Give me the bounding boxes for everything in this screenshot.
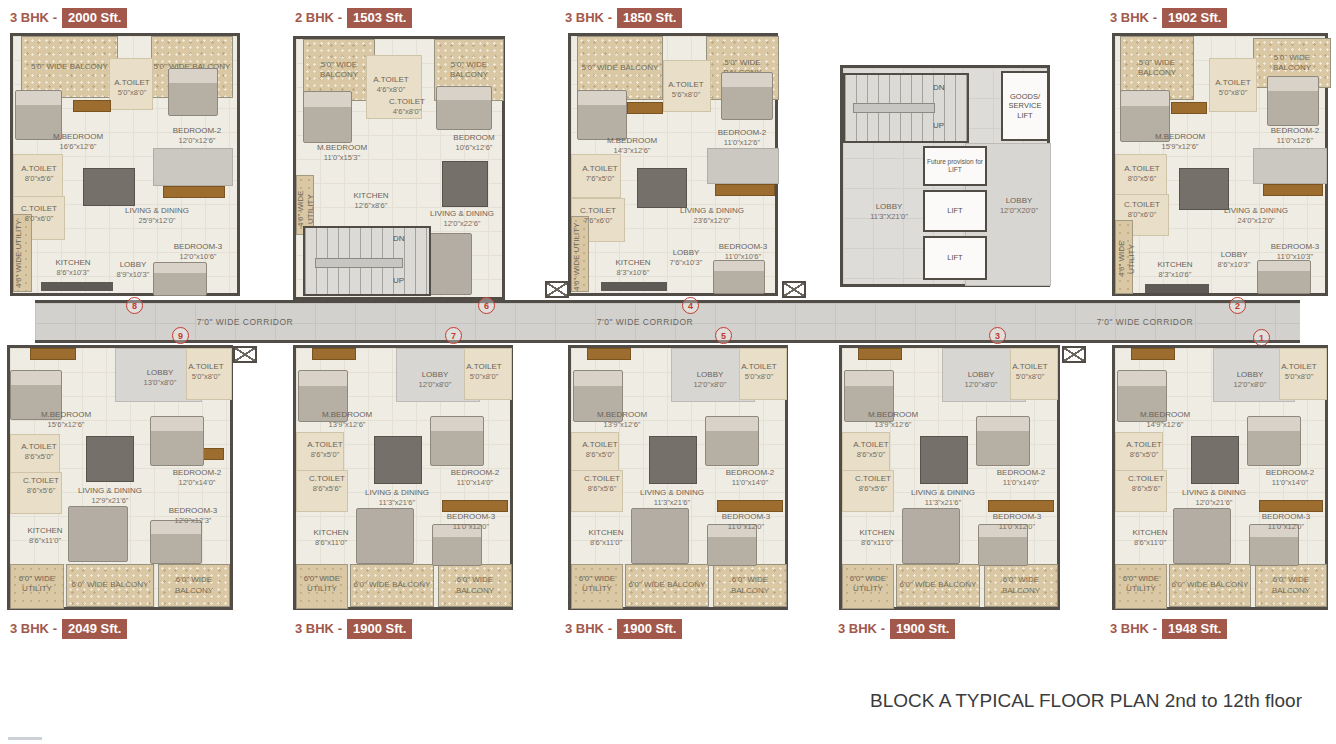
- room-label-lobby: LOBBY12'0"X20'0": [989, 196, 1049, 215]
- duct-shaft: [782, 281, 806, 298]
- room-label-living: LIVING & DINING24'0"x12'0": [1209, 206, 1303, 225]
- unit-number-5: 5: [715, 327, 732, 344]
- unit-number-7: 7: [445, 327, 462, 344]
- unit-2-3bhk-1902: 5'0" WIDE BALCONY 5'0" WIDE BALCONY M.BE…: [1112, 33, 1328, 296]
- unit-badge-1900-b: 3 BHK -1900 Sft.: [565, 621, 682, 636]
- room-label-ctoilet: C.TOILET8'6"x5'6": [846, 474, 900, 493]
- badge-area: 1902 Sft.: [1162, 8, 1227, 28]
- goods-service-lift: GOODS/ SERVICE LIFT: [1001, 71, 1049, 141]
- bed-icon: [577, 90, 627, 140]
- bed-icon: [713, 260, 765, 294]
- badge-area: 1900 Sft.: [890, 619, 955, 639]
- wardrobe-accent: [1259, 500, 1323, 512]
- room-label-mbedroom: M.BEDROOM13'9"x12'6": [579, 410, 665, 429]
- room-label-atoilet: A.TOILET5'0"x8'0": [458, 362, 510, 381]
- unit-badge-2049: 3 BHK -2049 Sft.: [10, 621, 127, 636]
- room-label-atoilet: A.TOILET8'6"x5'0": [298, 440, 352, 459]
- balcony-label: 6'0" WIDE BALCONY: [1172, 580, 1249, 590]
- unit-5-3bhk-1900: 6'0" WIDE BALCONY 6'0" WIDE BALCONY LOBB…: [568, 345, 788, 610]
- badge-bhk: 3 BHK: [1110, 621, 1149, 636]
- room-label-kitchen: KITCHEN8'6"x11'0": [1119, 528, 1181, 547]
- room-label-living: LIVING & DINING12'0"x22'6": [418, 209, 506, 228]
- room-label-living: LIVING & DINING25'9"x12'0": [109, 206, 205, 225]
- unit-1-3bhk-1948: 6'0" WIDE BALCONY 6'0" WIDE BALCONY LOBB…: [1112, 345, 1328, 610]
- wardrobe-accent: [73, 100, 111, 112]
- dining-table-icon: [920, 436, 968, 484]
- unit-9-3bhk-2049: 6'0" WIDE BALCONY 6'0" WIDE BALCONY LOBB…: [7, 345, 233, 610]
- rug-icon: [153, 148, 233, 186]
- sofa-icon: [428, 233, 472, 295]
- kitchen-counter: [41, 282, 113, 291]
- sofa-icon: [631, 508, 689, 564]
- stair-up-label: UP: [933, 121, 944, 130]
- room-label-ctoilet: C.TOILET8'6"x5'6": [300, 474, 354, 493]
- room-label-bedroom3: BEDROOM-311'0"x12'0": [707, 512, 785, 531]
- plan-title: BLOCK A TYPICAL FLOOR PLAN 2nd to 12th f…: [846, 690, 1326, 712]
- room-label-mbedroom: M.BEDROOM13'9"x12'6": [304, 410, 390, 429]
- room-label-atoilet: A.TOILET8'6"x5'0": [844, 440, 898, 459]
- badge-bhk: 3 BHK: [295, 621, 334, 636]
- balcony-label: 6'0" WIDE BALCONY: [354, 580, 431, 590]
- room-label-kitchen: KITCHEN8'6"x11'0": [14, 526, 76, 545]
- wardrobe-accent: [1131, 348, 1175, 360]
- room-label-utility: 6'0" WIDE UTILITY: [1115, 574, 1167, 594]
- room-label-living: LIVING & DINING12'9"x21'6": [62, 486, 158, 505]
- room-label-atoilet: A.TOILET5'6"x8'0": [659, 80, 713, 99]
- badge-sep: -: [1153, 621, 1157, 636]
- dining-table-icon: [83, 168, 135, 206]
- badge-area: 1503 Sft.: [347, 8, 412, 28]
- corridor-label: 7'0" WIDE CORRIDOR: [1055, 317, 1235, 327]
- room-label-bedroom3: BEDROOM-311'0"x12'0": [978, 512, 1056, 531]
- room-label-mbedroom: M.BEDROOM14'3"x12'6": [589, 136, 675, 155]
- wardrobe-accent: [988, 500, 1054, 512]
- room-label-atoilet: A.TOILET8'6"x5'0": [12, 442, 66, 461]
- balcony-label: 5'0" WIDE BALCONY: [435, 60, 503, 81]
- room-label-bedroom2: BEDROOM-212'0"x14'0": [158, 468, 236, 487]
- badge-sep: -: [53, 10, 57, 25]
- room-label-bedroom2: BEDROOM-211'0"x14'0": [982, 468, 1060, 487]
- room-label-atoilet: A.TOILET5'0"x8'0": [1004, 362, 1056, 381]
- room-label-ctoilet: C.TOILET8'6"x5'6": [14, 476, 68, 495]
- staircase: DN UP: [843, 73, 969, 143]
- balcony-label: 6'0" WIDE BALCONY: [714, 575, 786, 596]
- badge-area: 1850 Sft.: [617, 8, 682, 28]
- room-label-lobby: LOBBY8'9"x10'3": [105, 260, 161, 279]
- badge-sep: -: [881, 621, 885, 636]
- wardrobe-accent: [717, 500, 783, 512]
- bed-icon: [153, 262, 207, 296]
- balcony-label: 5'0" WIDE BALCONY: [31, 62, 108, 72]
- room-label-atoilet: A.TOILET5'0"x8'0": [1207, 78, 1259, 97]
- balcony: 5'0" WIDE BALCONY: [21, 36, 118, 98]
- badge-bhk: 3 BHK: [838, 621, 877, 636]
- room-label-bedroom: BEDROOM10'6"x12'6": [434, 133, 514, 152]
- balcony-label: 5'0" WIDE BALCONY: [1254, 53, 1330, 74]
- room-label-utility: 6'0" WIDE UTILITY: [842, 574, 894, 594]
- badge-bhk: 2 BHK: [295, 10, 334, 25]
- bed-icon: [721, 72, 773, 120]
- floor-plan-canvas: 3 BHK -2000 Sft. 2 BHK -1503 Sft. 3 BHK …: [0, 0, 1336, 744]
- balcony-label: 6'0" WIDE BALCONY: [159, 575, 229, 596]
- central-core: DN UP GOODS/ SERVICE LIFT Future provisi…: [840, 65, 1050, 287]
- rug-icon: [707, 148, 779, 184]
- room-label-kitchen: KITCHEN8'6"x11'0": [846, 528, 908, 547]
- wardrobe-accent: [442, 500, 508, 512]
- room-label-bedroom2: BEDROOM-211'0"x14'0": [436, 468, 514, 487]
- room-label-bedroom2: BEDROOM-211'0"x14'0": [1251, 468, 1329, 487]
- room-label-bedroom3: BEDROOM-311'0"x10'3": [1257, 242, 1333, 261]
- badge-area: 2049 Sft.: [62, 619, 127, 639]
- corridor: 7'0" WIDE CORRIDOR 7'0" WIDE CORRIDOR 7'…: [35, 300, 1300, 343]
- dining-table-icon: [1179, 168, 1229, 210]
- balcony: 6'0" WIDE BALCONY: [625, 564, 709, 607]
- stair-up-label: UP: [393, 276, 404, 285]
- room-label-living: LIVING & DINING11'3"x21'6": [625, 488, 719, 507]
- lift: LIFT: [923, 236, 987, 280]
- room-label-utility: 4'6" WIDE UTILITY: [1117, 226, 1137, 292]
- stair-landing: [315, 258, 403, 268]
- unit-number-9: 9: [172, 327, 189, 344]
- badge-bhk: 3 BHK: [565, 621, 604, 636]
- unit-number-2: 2: [1229, 297, 1246, 314]
- bed-icon: [1257, 260, 1311, 294]
- room-label-mbedroom: M.BEDROOM15'6"x12'6": [22, 410, 110, 429]
- balcony: 6'0" WIDE BALCONY: [158, 564, 230, 607]
- room-label-kitchen: KITCHEN8'6"x10'3": [41, 258, 105, 277]
- balcony-label: 6'0" WIDE BALCONY: [72, 580, 149, 590]
- room-label-mbedroom: M.BEDROOM13'9"x12'6": [850, 410, 936, 429]
- balcony: 6'0" WIDE BALCONY: [984, 564, 1058, 607]
- room-label-mbedroom: M.BEDROOM16'6"x12'6": [31, 132, 125, 151]
- dining-table-icon: [1191, 436, 1239, 484]
- room-label-kitchen: KITCHEN8'6"x11'0": [300, 528, 362, 547]
- balcony-label: 6'0" WIDE BALCONY: [1256, 575, 1326, 596]
- badge-sep: -: [1153, 10, 1157, 25]
- bed-icon: [150, 520, 202, 564]
- unit-4-3bhk-1850: 5'0" WIDE BALCONY 5'0" WIDE BALCONY M.BE…: [568, 33, 778, 296]
- room-label-bedroom2: BEDROOM-212'0"x12'6": [159, 126, 235, 145]
- sofa-icon: [1173, 508, 1231, 564]
- sofa-icon: [68, 506, 128, 562]
- room-label-utility: 6'0" WIDE UTILITY: [10, 574, 64, 594]
- room-label-mbedroom: M.BEDROOM15'9"x12'6": [1135, 132, 1225, 151]
- room-label-kitchen: KITCHEN12'6"x8'6": [338, 191, 404, 210]
- balcony-label: 5'0" WIDE BALCONY: [582, 63, 659, 73]
- unit-7-3bhk-1900: 6'0" WIDE BALCONY 6'0" WIDE BALCONY LOBB…: [293, 345, 513, 610]
- badge-sep: -: [338, 621, 342, 636]
- balcony: 6'0" WIDE BALCONY: [713, 564, 787, 607]
- bed-icon: [303, 91, 352, 143]
- bed-icon: [1267, 76, 1319, 126]
- stair-landing: [853, 103, 935, 113]
- wardrobe-accent: [627, 102, 663, 114]
- room-label-bedroom3: BEDROOM-311'0"x12'0": [432, 512, 510, 531]
- dining-table-icon: [442, 161, 488, 207]
- unit-number-4: 4: [682, 297, 699, 314]
- room-label-bedroom2: BEDROOM-211'0"x12'6": [705, 128, 779, 147]
- badge-sep: -: [53, 621, 57, 636]
- room-label-bedroom2: BEDROOM-211'0"x12'6": [1259, 126, 1331, 145]
- room-label-atoilet: A.TOILET4'6"x8'0": [364, 75, 418, 94]
- badge-sep: -: [338, 10, 342, 25]
- sofa-icon: [902, 508, 960, 564]
- wardrobe-accent: [1263, 184, 1323, 196]
- badge-area: 1900 Sft.: [347, 619, 412, 639]
- room-label-atoilet: A.TOILET8'6"x5'0": [1117, 440, 1171, 459]
- bed-icon: [705, 416, 759, 466]
- badge-area: 1948 Sft.: [1162, 619, 1227, 639]
- balcony: 6'0" WIDE BALCONY: [350, 564, 434, 607]
- room-label-atoilet: A.TOILET5'0"x8'0": [107, 78, 157, 97]
- wardrobe-accent: [30, 348, 76, 360]
- unit-6-2bhk-1503: 5'0" WIDE BALCONY 5'0" WIDE BALCONY DN U…: [293, 36, 505, 300]
- room-label-living: LIVING & DINING12'0"x21'6": [1167, 488, 1261, 507]
- wardrobe-accent: [1171, 102, 1207, 114]
- staircase: DN UP: [303, 226, 431, 296]
- badge-bhk: 3 BHK: [565, 10, 604, 25]
- badge-area: 1900 Sft.: [617, 619, 682, 639]
- unit-badge-1900-c: 3 BHK -1900 Sft.: [838, 621, 955, 636]
- rug-icon: [1253, 148, 1327, 184]
- dining-table-icon: [86, 436, 134, 482]
- room-label-atoilet: A.TOILET8'6"x5'0": [573, 440, 627, 459]
- room-label-mbedroom: M.BEDROOM11'0"x15'3": [300, 143, 384, 162]
- bed-icon: [976, 416, 1030, 466]
- footer-mark: [8, 737, 42, 740]
- balcony-label: 6'0" WIDE BALCONY: [439, 575, 511, 596]
- room-label-mbedroom: M.BEDROOM14'9"x12'6": [1121, 410, 1209, 429]
- room-label-living: LIVING & DINING11'3"x21'6": [350, 488, 444, 507]
- badge-area: 2000 Sft.: [62, 8, 127, 28]
- room-label-bedroom3: BEDROOM-312'0"x12'3": [154, 506, 232, 525]
- room-label-ctoilet: C.TOILET8'0"x6'0": [1115, 200, 1169, 219]
- room-label-atoilet: A.TOILET5'0"x8'0": [180, 362, 232, 381]
- balcony-label: 6'0" WIDE BALCONY: [900, 580, 977, 590]
- unit-badge-1850: 3 BHK -1850 Sft.: [565, 10, 682, 25]
- room-label-atoilet: A.TOILET7'6"x5'0": [573, 164, 627, 183]
- kitchen-counter: [601, 282, 667, 291]
- room-label-bedroom3: BEDROOM-311'0"x12'0": [1247, 512, 1325, 531]
- badge-bhk: 3 BHK: [1110, 10, 1149, 25]
- balcony-label: 6'0" WIDE BALCONY: [629, 580, 706, 590]
- bed-icon: [436, 86, 492, 130]
- unit-number-3: 3: [989, 327, 1006, 344]
- bed-icon: [430, 416, 484, 466]
- wardrobe-accent: [312, 348, 356, 360]
- unit-badge-1503: 2 BHK -1503 Sft.: [295, 10, 412, 25]
- room-label-bedroom3: BEDROOM-311'0"x10'6": [705, 242, 781, 261]
- stair-dn-label: DN: [393, 234, 405, 243]
- corridor-label: 7'0" WIDE CORRIDOR: [555, 317, 735, 327]
- room-label-atoilet: A.TOILET8'0"x5'6": [13, 164, 65, 183]
- room-label-living: LIVING & DINING11'3"x21'6": [896, 488, 990, 507]
- unit-8-3bhk-2000: 5'0" WIDE BALCONY 5'0" WIDE BALCONY M.BE…: [10, 33, 240, 296]
- room-label-atoilet: A.TOILET8'0"x5'6": [1115, 164, 1169, 183]
- corridor-label: 7'0" WIDE CORRIDOR: [155, 317, 335, 327]
- room-label-kitchen: KITCHEN8'3"x10'6": [601, 258, 665, 277]
- dining-table-icon: [649, 436, 697, 484]
- room-label-utility: 4'6" WIDE UTILITY: [14, 218, 24, 290]
- badge-bhk: 3 BHK: [10, 10, 49, 25]
- room-label-kitchen: KITCHEN8'3"x10'6": [1143, 260, 1207, 279]
- wardrobe-accent: [587, 348, 631, 360]
- duct-shaft: [1062, 346, 1086, 363]
- room-label-ctoilet: C.TOILET8'6"x5'6": [575, 474, 629, 493]
- balcony-label: 6'0" WIDE BALCONY: [985, 575, 1057, 596]
- badge-sep: -: [608, 621, 612, 636]
- badge-bhk: 3 BHK: [10, 621, 49, 636]
- dining-table-icon: [374, 436, 422, 484]
- kitchen-counter: [1145, 284, 1209, 293]
- room-label-kitchen: KITCHEN8'6"x11'0": [575, 528, 637, 547]
- lift: LIFT: [923, 190, 987, 232]
- stair-dn-label: DN: [933, 83, 945, 92]
- unit-badge-2000: 3 BHK -2000 Sft.: [10, 10, 127, 25]
- room-label-atoilet: A.TOILET5'0"x8'0": [1273, 362, 1325, 381]
- room-label-atoilet: A.TOILET5'0"x8'0": [733, 362, 785, 381]
- room-label-living: LIVING & DINING23'6"x12'0": [665, 206, 759, 225]
- unit-badge-1900-a: 3 BHK -1900 Sft.: [295, 621, 412, 636]
- unit-badge-1948: 3 BHK -1948 Sft.: [1110, 621, 1227, 636]
- sofa-icon: [356, 508, 414, 564]
- room-label-utility: 4'6" WIDE UTILITY: [572, 222, 582, 292]
- wardrobe-accent: [715, 184, 775, 196]
- room-label-utility: 6'0" WIDE UTILITY: [296, 574, 348, 594]
- dining-table-icon: [637, 168, 687, 208]
- duct-shaft: [233, 346, 257, 363]
- room-label-ctoilet: C.TOILET8'6"x5'6": [1119, 474, 1173, 493]
- room-label-utility: 4'6" WIDE UTILITY: [296, 179, 316, 239]
- badge-sep: -: [608, 10, 612, 25]
- future-lift-provision: Future provision for LIFT: [923, 146, 987, 186]
- bed-icon: [1247, 416, 1301, 466]
- bed-icon: [168, 68, 218, 116]
- room-label-ctoilet: C.TOILET4'6"x8'0": [380, 97, 434, 116]
- room-label-lobby: LOBBY11'3"X21'0": [851, 202, 927, 221]
- wardrobe-accent: [163, 186, 225, 198]
- balcony-label: 5'0" WIDE BALCONY: [1121, 58, 1193, 79]
- balcony: 6'0" WIDE BALCONY: [66, 564, 154, 607]
- bed-icon: [150, 416, 204, 466]
- room-label-bedroom3: BEDROOM-312'0"x10'6": [159, 242, 237, 261]
- unit-number-1: 1: [1253, 329, 1270, 346]
- unit-number-6: 6: [478, 297, 495, 314]
- wardrobe-accent: [858, 348, 902, 360]
- unit-3-3bhk-1900: 6'0" WIDE BALCONY 6'0" WIDE BALCONY LOBB…: [839, 345, 1060, 610]
- balcony: 6'0" WIDE BALCONY: [438, 564, 512, 607]
- unit-badge-1902: 3 BHK -1902 Sft.: [1110, 10, 1227, 25]
- room-label-bedroom2: BEDROOM-211'0"x14'0": [711, 468, 789, 487]
- balcony: 6'0" WIDE BALCONY: [1255, 564, 1327, 607]
- duct-shaft: [545, 281, 569, 298]
- balcony: 6'0" WIDE BALCONY: [1169, 564, 1251, 607]
- room-label-lobby: LOBBY8'6"x10'3": [1207, 250, 1261, 269]
- unit-number-8: 8: [126, 297, 143, 314]
- room-label-utility: 6'0" WIDE UTILITY: [571, 574, 623, 594]
- balcony: 6'0" WIDE BALCONY: [896, 564, 980, 607]
